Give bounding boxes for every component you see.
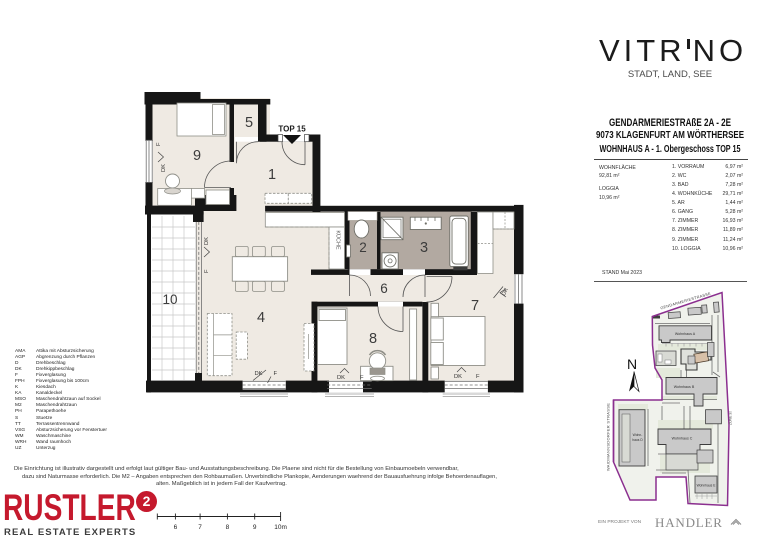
- svg-text:Wohnhaus B: Wohnhaus B: [674, 385, 695, 389]
- svg-text:ZONE 30: ZONE 30: [729, 411, 733, 425]
- svg-text:Wohnhaus A: Wohnhaus A: [675, 332, 696, 336]
- svg-text:6: 6: [174, 524, 178, 531]
- svg-text:Wohn-: Wohn-: [633, 433, 643, 437]
- svg-text:Wohnhaus E: Wohnhaus E: [697, 484, 717, 488]
- svg-text:9: 9: [253, 524, 257, 531]
- svg-text:WAIDMANNSDORFER STRASSE: WAIDMANNSDORFER STRASSE: [606, 403, 611, 471]
- svg-text:10m: 10m: [274, 524, 287, 531]
- svg-text:haus D: haus D: [632, 438, 643, 442]
- svg-text:7: 7: [198, 524, 202, 531]
- svg-text:N: N: [627, 356, 637, 372]
- svg-text:8: 8: [226, 524, 230, 531]
- svg-text:Wohnhaus C: Wohnhaus C: [672, 437, 693, 441]
